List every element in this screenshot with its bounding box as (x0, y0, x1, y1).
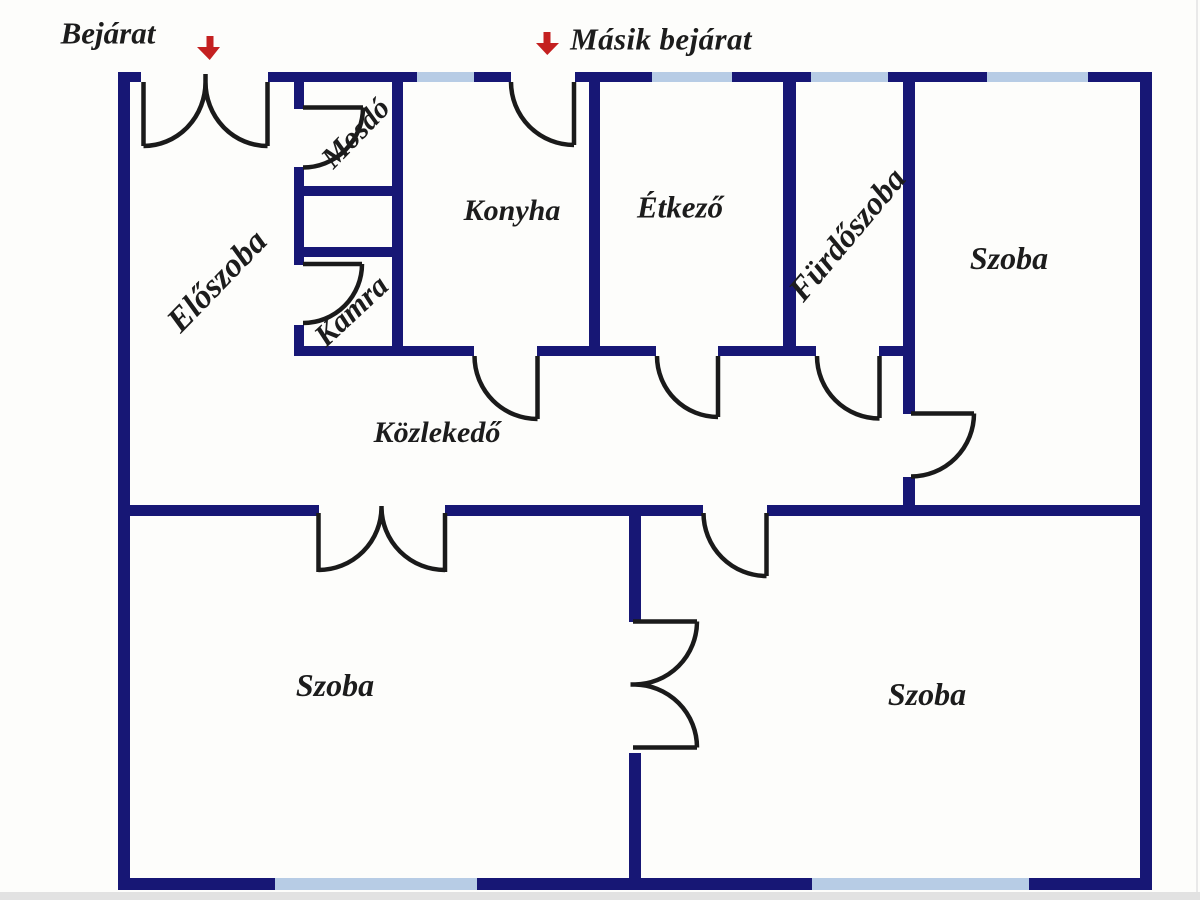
svg-text:Étkező: Étkező (636, 190, 726, 225)
svg-text:Másik bejárat: Másik bejárat (569, 22, 753, 57)
svg-text:Szoba: Szoba (970, 240, 1048, 276)
svg-text:Szoba: Szoba (888, 676, 966, 712)
svg-text:Bejárat: Bejárat (60, 16, 157, 51)
svg-text:Konyha: Konyha (463, 194, 561, 227)
svg-text:Közlekedő: Közlekedő (373, 416, 503, 449)
svg-text:Szoba: Szoba (296, 667, 374, 703)
